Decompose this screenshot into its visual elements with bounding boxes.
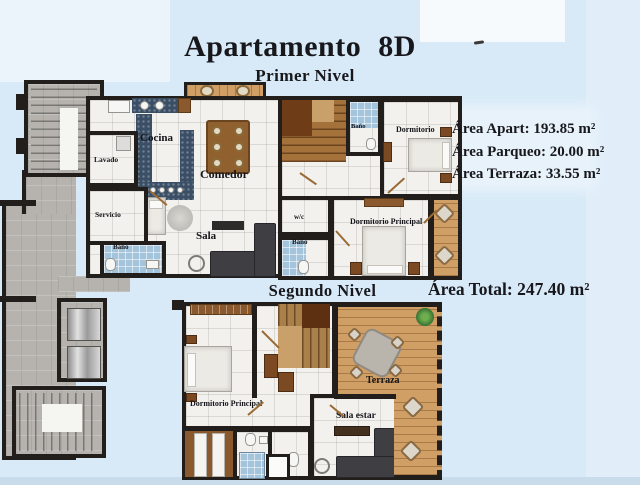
area-info: Área Apart: 193.85 m² Área Parqueo: 20.0… xyxy=(452,118,622,186)
side-table xyxy=(314,458,330,474)
shower xyxy=(239,452,265,479)
level2-title: Segundo Nivel xyxy=(255,281,390,301)
closet xyxy=(190,304,252,315)
page-title: Apartamento 8D xyxy=(120,30,480,64)
stairs-level2 xyxy=(278,304,330,368)
area-terraza: Área Terraza: 33.55 m² xyxy=(452,163,622,186)
hall-cabinet xyxy=(278,372,294,392)
area-total: Área Total: 247.40 m² xyxy=(428,279,589,300)
floorplan-canvas: Cocina Comedor Sala Lavado Servicio Baño xyxy=(0,0,640,485)
room-label-terraza: Terraza xyxy=(366,376,400,386)
bed xyxy=(184,346,232,392)
closet-slot xyxy=(212,433,225,477)
room-label-dormitorio-principal-l2: Dormitorio Principal xyxy=(190,400,262,408)
pillow xyxy=(187,353,196,387)
closet-slot xyxy=(194,433,207,477)
tv-console xyxy=(334,426,370,436)
area-parqueo: Área Parqueo: 20.00 m² xyxy=(452,141,622,164)
stair-light-flight xyxy=(278,326,302,368)
duct-shaft xyxy=(266,454,290,480)
terraza-wall xyxy=(334,394,396,399)
area-apart: Área Apart: 193.85 m² xyxy=(452,118,622,141)
stair-dark-flight xyxy=(302,304,330,328)
level1-title: Primer Nivel xyxy=(220,66,390,86)
sink xyxy=(259,436,268,444)
sofa xyxy=(336,456,396,478)
plant xyxy=(416,308,434,326)
partition-wall xyxy=(252,302,257,398)
nightstand xyxy=(186,335,197,344)
partition-wall xyxy=(268,428,272,456)
toilet xyxy=(245,433,256,446)
partition-wall xyxy=(233,428,237,480)
closet-shelves xyxy=(185,431,233,477)
hall-cabinet xyxy=(264,354,278,378)
